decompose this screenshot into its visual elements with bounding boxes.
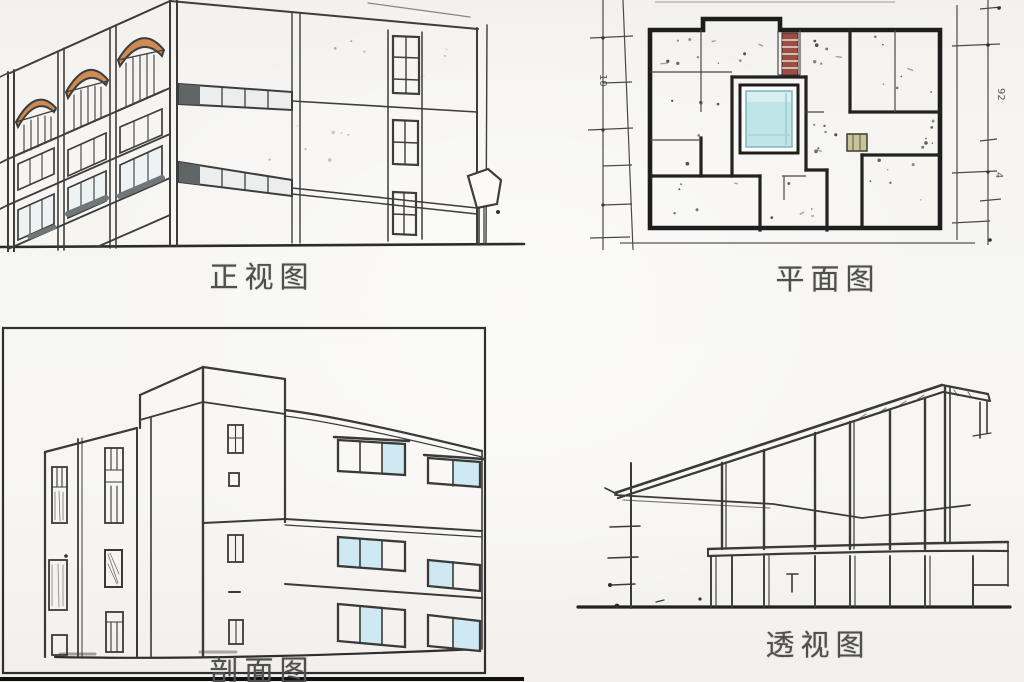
right-windows-row1 <box>334 437 484 487</box>
architectural-views-sheet: 正视图 <box>0 0 1024 682</box>
left-face-row3-windows <box>18 146 162 240</box>
dim-label-left: 10 <box>597 74 608 87</box>
fixture <box>847 134 867 151</box>
right-windows-row3 <box>338 604 480 651</box>
courtyard-pool <box>740 85 798 153</box>
section-frame <box>3 328 485 673</box>
window-strip-2 <box>179 162 292 196</box>
tower-windows <box>228 425 243 644</box>
left-facade <box>45 428 137 657</box>
stair-window-column <box>388 30 422 241</box>
perspective-view-label: 透视图 <box>765 622 870 664</box>
dimension-lines-left <box>588 0 633 250</box>
section-view-label: 剖面图 <box>209 648 314 682</box>
right-windows-row2 <box>338 537 480 591</box>
dim-label-right-upper: 92 <box>995 88 1006 101</box>
right-facade <box>203 410 482 649</box>
front-view-label: 正视图 <box>209 254 314 296</box>
dimension-pole <box>605 463 640 608</box>
window-strip-1 <box>179 84 292 110</box>
dim-label-right-lower: 4 <box>993 172 1004 178</box>
plan-view-panel: 10 92 4 平面图 <box>560 0 1024 300</box>
arched-windows <box>16 38 164 155</box>
staircase <box>782 33 798 75</box>
section-view-panel: 剖面图 <box>0 310 530 682</box>
lower-columns <box>711 556 973 607</box>
front-view-drawing <box>0 0 530 252</box>
floor-slab <box>708 542 1008 586</box>
front-view-panel: 正视图 <box>0 0 530 300</box>
perspective-view-panel: 透视图 <box>560 330 1024 682</box>
corner-tower <box>137 367 285 657</box>
section-view-drawing <box>0 310 530 682</box>
plan-view-label: 平面图 <box>775 256 880 298</box>
plan-view-drawing: 10 92 4 <box>560 0 1024 252</box>
upper-columns <box>722 387 991 549</box>
slanted-roof <box>615 385 990 498</box>
dimension-lines-right <box>952 0 1001 245</box>
